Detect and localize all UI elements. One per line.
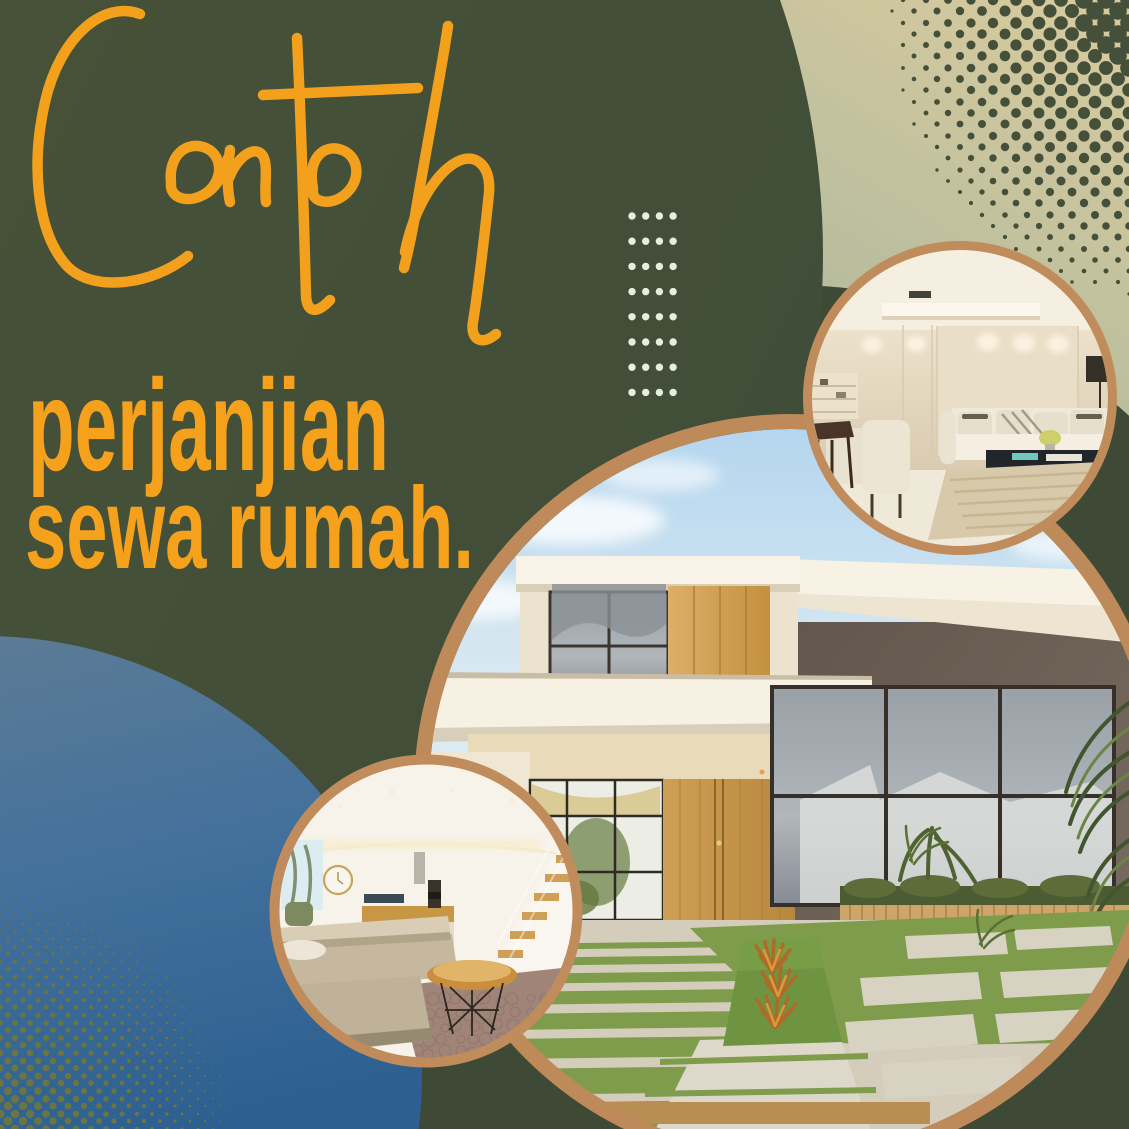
svg-text:sewa rumah.: sewa rumah. [25,463,474,593]
